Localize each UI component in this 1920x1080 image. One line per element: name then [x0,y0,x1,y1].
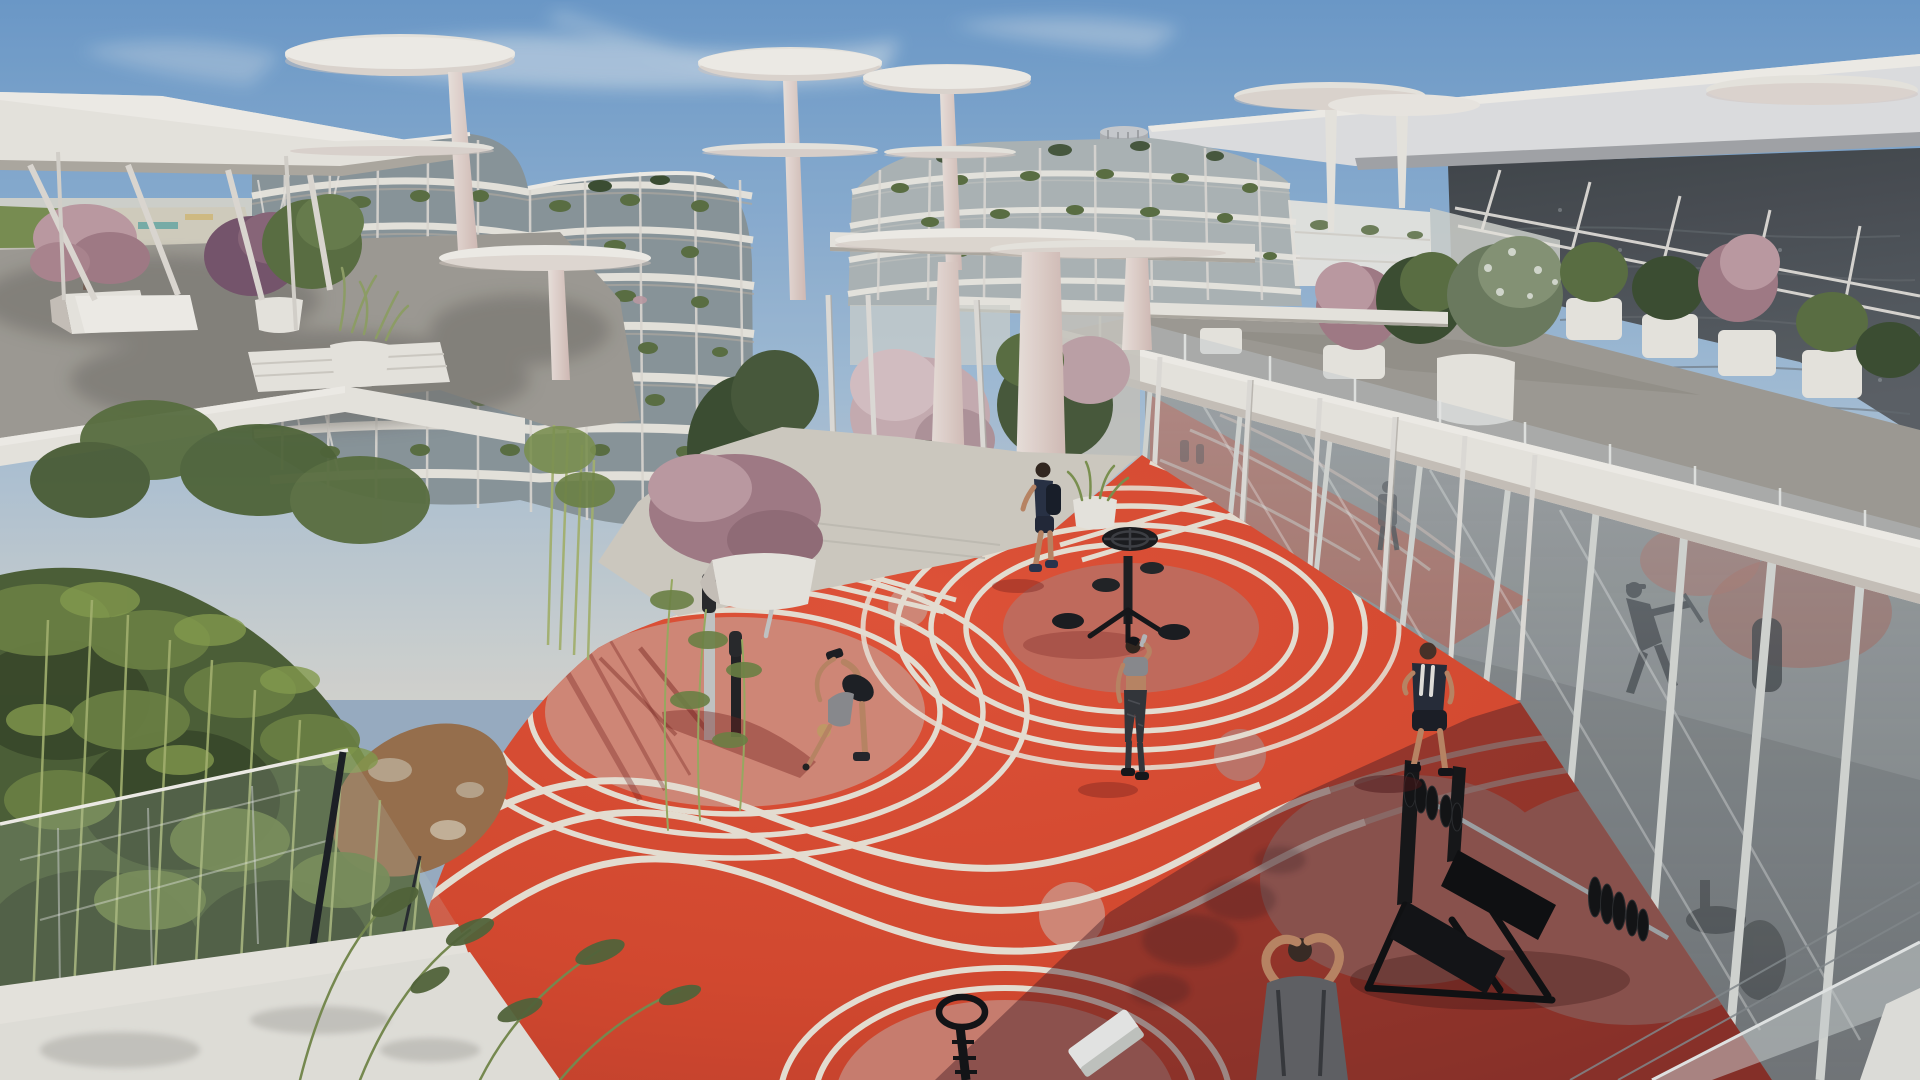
architectural-render [0,0,1920,1080]
vignette [0,0,1920,1080]
render-canvas [0,0,1920,1080]
